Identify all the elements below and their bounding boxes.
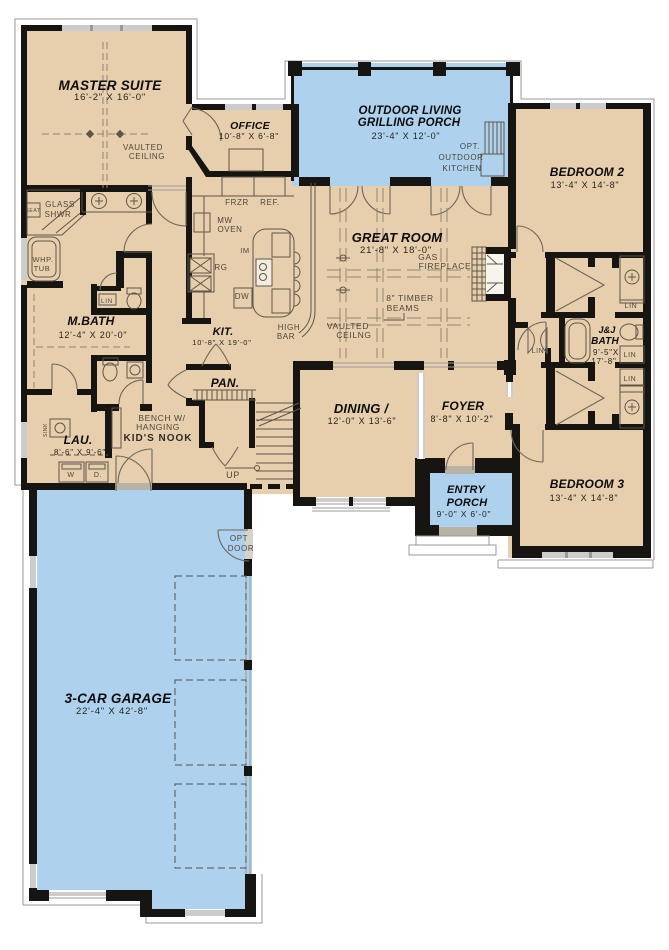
svg-text:SINK: SINK: [43, 423, 49, 437]
svg-text:DW: DW: [235, 292, 250, 301]
svg-text:13'-4" X 14'-8": 13'-4" X 14'-8": [551, 180, 620, 190]
svg-text:HIGH: HIGH: [278, 323, 300, 332]
svg-text:M.BATH: M.BATH: [68, 314, 115, 328]
svg-text:LIN: LIN: [624, 376, 637, 383]
svg-text:D.: D.: [94, 472, 102, 479]
svg-text:22'-4" X 42'-8": 22'-4" X 42'-8": [76, 706, 148, 717]
svg-text:23'-4" X 12'-0": 23'-4" X 12'-0": [372, 131, 441, 141]
svg-text:12'-0" X 13'-6": 12'-0" X 13'-6": [328, 416, 397, 426]
svg-text:DOOR: DOOR: [228, 544, 254, 553]
svg-text:RG: RG: [214, 263, 227, 272]
svg-text:LIN: LIN: [532, 348, 545, 355]
svg-text:J&J: J&J: [598, 325, 616, 335]
svg-text:DINING /: DINING /: [334, 401, 390, 416]
svg-text:PAN.: PAN.: [211, 376, 240, 390]
svg-text:16'-2" X 16'-0": 16'-2" X 16'-0": [74, 92, 146, 103]
svg-text:KITCHEN: KITCHEN: [442, 164, 481, 173]
svg-text:WHP.: WHP.: [32, 255, 53, 264]
svg-text:OUTDOOR: OUTDOOR: [438, 153, 483, 162]
svg-text:KIT.: KIT.: [213, 326, 234, 338]
svg-text:LAU.: LAU.: [64, 433, 93, 447]
svg-text:TUB: TUB: [34, 264, 51, 273]
svg-text:MASTER SUITE: MASTER SUITE: [59, 78, 163, 93]
svg-text:17'-8": 17'-8": [591, 357, 616, 366]
svg-text:GRILLING PORCH: GRILLING PORCH: [358, 117, 461, 129]
svg-text:9'-5"X: 9'-5"X: [593, 348, 619, 357]
svg-text:GREAT ROOM: GREAT ROOM: [352, 230, 444, 245]
svg-text:FOYER: FOYER: [442, 399, 484, 413]
svg-text:OVEN: OVEN: [217, 225, 242, 234]
svg-text:FRZR: FRZR: [225, 198, 249, 207]
svg-text:10'-8" X 6'-8": 10'-8" X 6'-8": [219, 131, 279, 141]
svg-text:SHWR: SHWR: [45, 210, 72, 219]
svg-text:OPT.: OPT.: [460, 142, 480, 151]
svg-text:BATH: BATH: [591, 336, 619, 347]
svg-text:BEAMS: BEAMS: [387, 303, 420, 313]
svg-text:8'-8" X 10'-2": 8'-8" X 10'-2": [430, 414, 493, 424]
svg-text:UP: UP: [226, 470, 240, 480]
svg-text:CEILNG: CEILNG: [336, 330, 371, 340]
svg-text:BEDROOM 2: BEDROOM 2: [550, 165, 625, 179]
svg-text:W: W: [67, 472, 74, 479]
svg-text:8" TIMBER: 8" TIMBER: [386, 293, 433, 303]
svg-text:BEDROOM 3: BEDROOM 3: [550, 477, 625, 491]
svg-text:12'-4" X 20'-0": 12'-4" X 20'-0": [59, 330, 128, 340]
svg-text:PORCH: PORCH: [447, 497, 489, 509]
svg-text:GLASS: GLASS: [45, 200, 75, 209]
svg-text:9'-0" X 6'-0": 9'-0" X 6'-0": [437, 509, 492, 519]
svg-text:MW: MW: [217, 216, 232, 225]
svg-text:13'-4" X 14'-8": 13'-4" X 14'-8": [550, 493, 619, 503]
svg-text:KID'S NOOK: KID'S NOOK: [123, 433, 192, 444]
svg-text:LIN: LIN: [625, 303, 638, 310]
svg-text:SEAT: SEAT: [25, 208, 40, 214]
svg-text:OUTDOOR LIVING: OUTDOOR LIVING: [358, 105, 461, 117]
svg-text:8'-6" X 9'-6": 8'-6" X 9'-6": [54, 448, 106, 457]
svg-text:FIREPLACE: FIREPLACE: [419, 261, 472, 271]
svg-text:3-CAR GARAGE: 3-CAR GARAGE: [65, 691, 172, 706]
svg-text:LIN: LIN: [624, 352, 637, 359]
svg-text:IM: IM: [240, 246, 250, 255]
svg-text:OPT: OPT: [230, 534, 248, 543]
svg-text:REF.: REF.: [260, 198, 280, 207]
svg-text:HANGING: HANGING: [136, 422, 180, 432]
svg-text:CEILING: CEILING: [129, 152, 165, 161]
svg-text:ENTRY: ENTRY: [447, 484, 487, 496]
svg-text:BAR: BAR: [277, 332, 295, 341]
svg-text:LIN: LIN: [101, 298, 113, 305]
svg-text:VAULTED: VAULTED: [123, 143, 163, 152]
svg-text:10'-8" X 19'-0": 10'-8" X 19'-0": [192, 338, 251, 347]
